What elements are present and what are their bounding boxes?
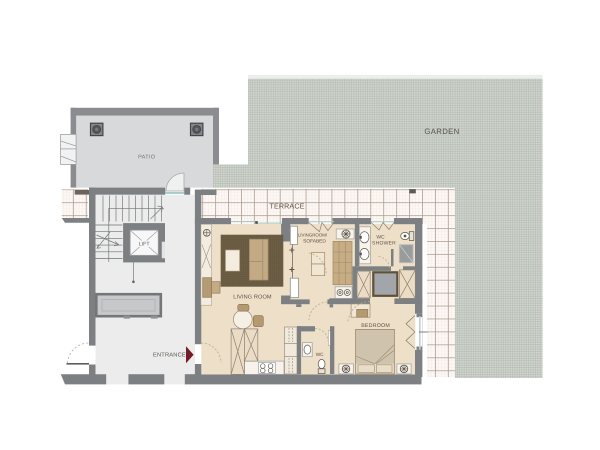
svg-text:LIVINGROOM/: LIVINGROOM/	[298, 232, 328, 237]
svg-text:SOFABED: SOFABED	[303, 239, 326, 245]
svg-text:GARDEN: GARDEN	[424, 127, 459, 136]
svg-text:TERRACE: TERRACE	[269, 201, 304, 210]
svg-text:WC: WC	[316, 352, 324, 357]
svg-text:WC: WC	[376, 234, 385, 240]
svg-text:PATIO: PATIO	[138, 154, 156, 160]
svg-text:BEDROOM: BEDROOM	[361, 323, 390, 329]
svg-text:SHOWER: SHOWER	[372, 241, 396, 247]
svg-text:ENTRANCE: ENTRANCE	[153, 353, 186, 359]
svg-text:LIVING ROOM: LIVING ROOM	[233, 294, 272, 300]
svg-text:LIFT: LIFT	[139, 242, 151, 248]
